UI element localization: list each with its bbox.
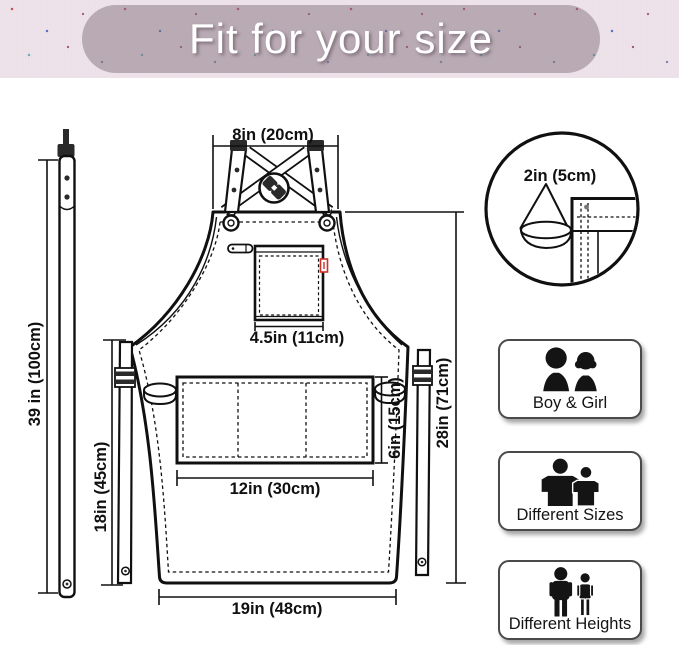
info-card-different-sizes: Different Sizes [498, 451, 642, 531]
dim-strap-length: 39 in (100cm) [26, 160, 58, 593]
product-infographic: Fit for your size [0, 0, 679, 645]
dim-hem-detail-label: 2in (5cm) [524, 167, 596, 185]
neck-strap-piece [58, 129, 75, 597]
dim-front-pocket-height-label: 6in (15cm) [386, 377, 404, 459]
waist-strap-right [413, 350, 432, 575]
dim-apron-length-label: 28in (71cm) [434, 358, 452, 449]
cross-back-straps [224, 140, 330, 212]
pen-icon [228, 245, 253, 253]
front-pocket [177, 377, 373, 463]
dim-bottom-width-label: 19in (48cm) [232, 600, 323, 618]
different-heights-icon [540, 567, 600, 619]
dim-bottom-width: 19in (48cm) [159, 589, 396, 618]
dim-strap-length-label: 39 in (100cm) [26, 322, 44, 427]
towel-loop-left [144, 384, 176, 405]
brand-tag [321, 259, 328, 272]
different-sizes-icon [539, 458, 601, 508]
waist-strap-left [115, 342, 135, 583]
info-card-different-heights: Different Heights [498, 560, 642, 640]
hem-detail-circle: 2in (5cm) [486, 133, 645, 290]
info-card-label-boy-girl: Boy & Girl [533, 393, 607, 413]
info-card-boy-girl: Boy & Girl [498, 339, 642, 419]
dim-front-pocket-width-label: 12in (30cm) [230, 480, 321, 498]
apron-diagram: 8in (20cm) 39 in (100cm) 4.5in (11cm) 18… [0, 0, 679, 645]
dim-side-length-label: 18in (45cm) [92, 442, 110, 533]
dim-chest-pocket-label: 4.5in (11cm) [250, 329, 344, 347]
dim-neck-width-label: 8in (20cm) [232, 126, 314, 144]
boy-girl-icon [537, 346, 603, 394]
info-card-label-different-sizes: Different Sizes [517, 505, 624, 525]
